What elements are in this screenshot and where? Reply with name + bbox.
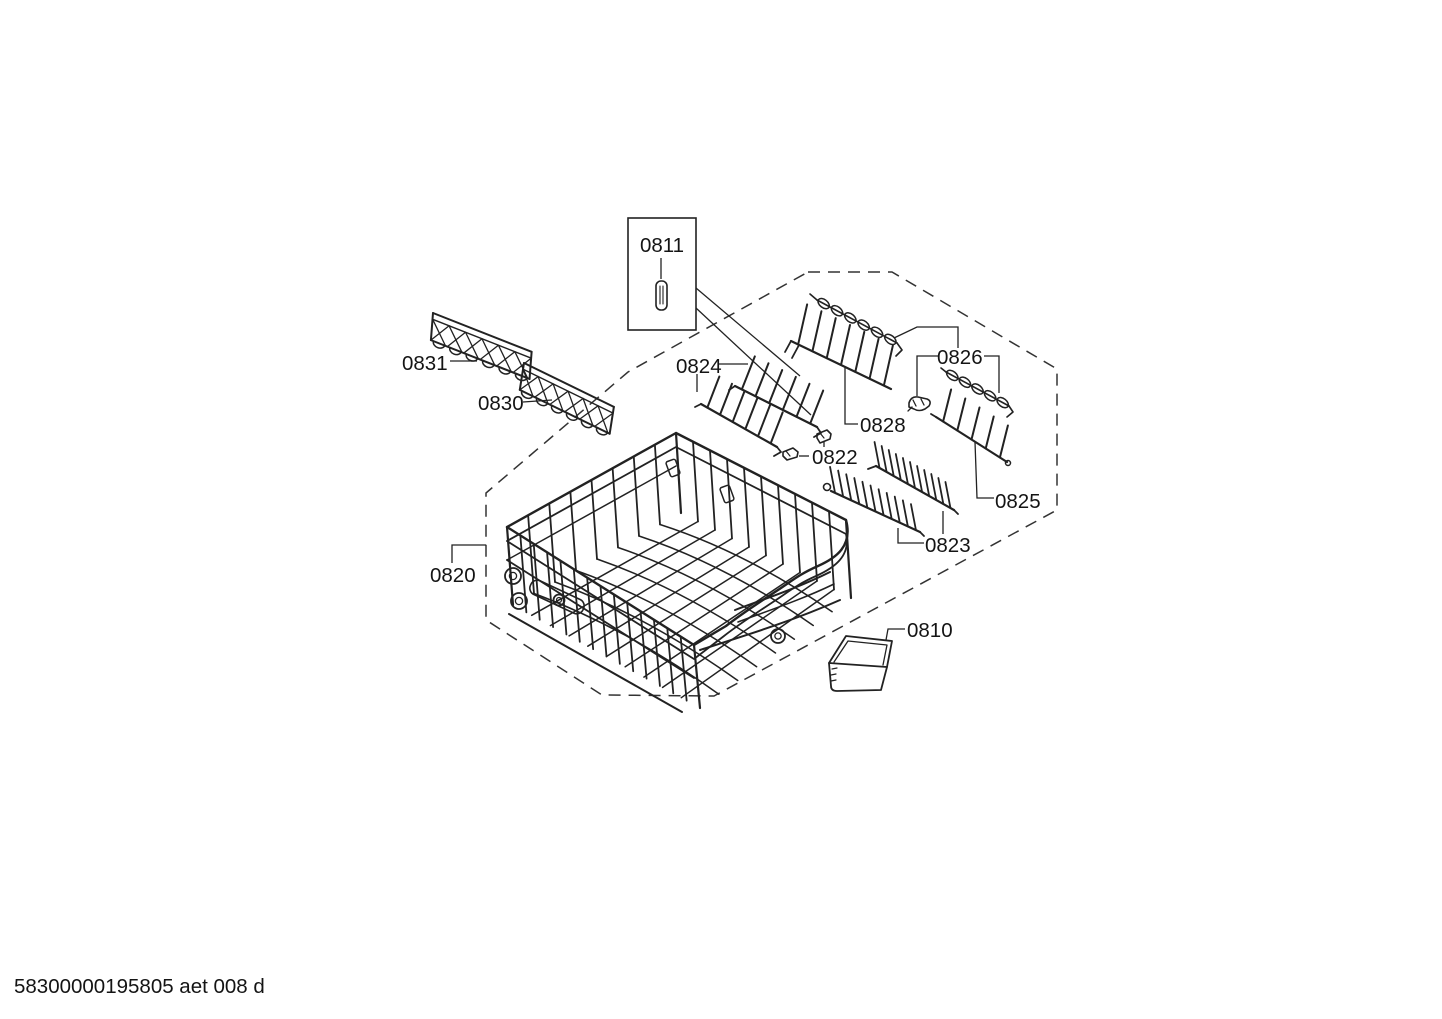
loose-parts-drawing (422, 294, 1013, 536)
footer-document-code: 58300000195805 aet 008 d (14, 975, 265, 998)
part-label-0828: 0828 (860, 414, 906, 437)
basket-0820-drawing (505, 433, 851, 712)
parts-diagram-page: 0811 0831 0830 0824 0828 0826 0822 0825 … (0, 0, 1442, 1019)
part-label-0811: 0811 (640, 234, 684, 257)
part-label-0822: 0822 (812, 446, 858, 469)
part-label-0831: 0831 (402, 352, 448, 375)
bearing-clip-0826-drawing (908, 397, 930, 411)
part-label-0810: 0810 (907, 619, 953, 642)
tray-0810-drawing (829, 636, 892, 691)
part-label-0820: 0820 (430, 564, 476, 587)
part-label-0823: 0823 (925, 534, 971, 557)
part-label-0825: 0825 (995, 490, 1041, 513)
part-number-labels: 0811 0831 0830 0824 0828 0826 0822 0825 … (402, 234, 1041, 642)
part-label-0830: 0830 (478, 392, 524, 415)
part-label-0826: 0826 (937, 346, 983, 369)
exploded-view-drawing: 0811 0831 0830 0824 0828 0826 0822 0825 … (0, 0, 1442, 1019)
part-label-0824: 0824 (676, 355, 722, 378)
